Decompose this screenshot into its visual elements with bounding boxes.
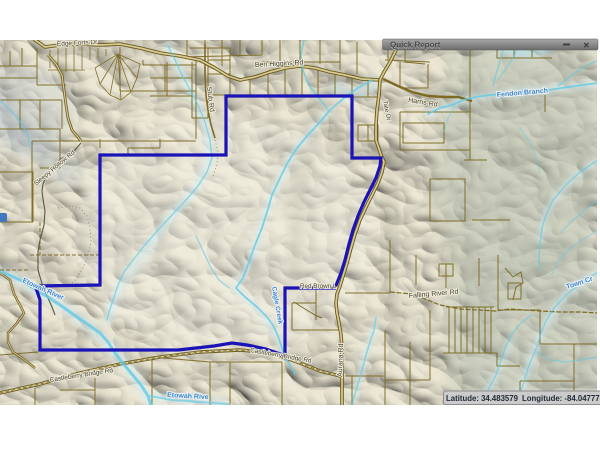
- svg-text:Aurana Rd: Aurana Rd: [337, 343, 345, 377]
- svg-text:Latitude: 34.483579: Latitude: 34.483579: [446, 394, 519, 403]
- svg-text:✕: ✕: [583, 41, 590, 50]
- svg-text:Quick Report: Quick Report: [390, 41, 441, 50]
- svg-text:Longitude: -84.04777: Longitude: -84.04777: [522, 394, 600, 403]
- svg-text:Red Brown L: Red Brown L: [300, 283, 337, 290]
